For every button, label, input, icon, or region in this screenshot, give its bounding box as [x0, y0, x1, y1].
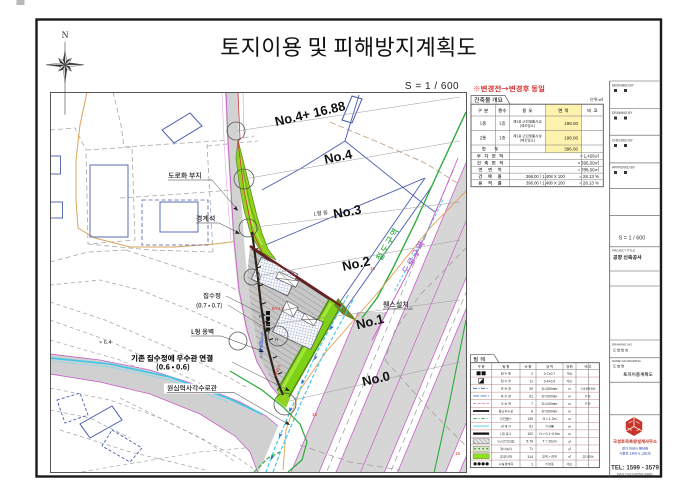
svg-text:-: - [587, 410, 588, 414]
svg-text:P-E: P-E [585, 394, 590, 398]
svg-text:D=100mm: D=100mm [542, 402, 558, 406]
svg-text:-: - [549, 447, 550, 451]
svg-text:T = 20cm: T = 20cm [542, 440, 556, 444]
svg-text:DESIGNED BY: DESIGNED BY [612, 84, 635, 88]
svg-text:0.4×0.5: 0.4×0.5 [544, 379, 556, 383]
svg-text:396.00 / 1,408 X 100: 396.00 / 1,408 X 100 [526, 174, 566, 179]
svg-text:29: 29 [529, 387, 533, 391]
svg-text:198.00: 198.00 [564, 121, 578, 126]
svg-text:102: 102 [527, 432, 533, 436]
svg-text:우수관 D=200mm: 우수관 D=200mm [259, 331, 265, 358]
svg-text:DRAWING NO.: DRAWING NO. [612, 343, 633, 347]
svg-text:8: 8 [531, 410, 533, 414]
svg-text:S = 1 / 600: S = 1 / 600 [405, 81, 459, 92]
svg-text:5.76: 5.76 [526, 440, 533, 444]
svg-text:PROJECT TITLE: PROJECT TITLE [612, 249, 635, 253]
svg-text:APPROVED BY: APPROVED BY [612, 166, 636, 170]
svg-text:0.7×0.7: 0.7×0.7 [544, 372, 556, 376]
svg-text:-: - [587, 425, 588, 429]
svg-text:DRAWING BY: DRAWING BY [612, 111, 633, 115]
svg-text:H: H [275, 337, 278, 342]
svg-text:7: 7 [531, 402, 533, 406]
svg-text:= 28.13 %: = 28.13 % [579, 181, 599, 186]
svg-text:198.00: 198.00 [564, 135, 578, 140]
svg-text:S = 1 / 600: S = 1 / 600 [619, 236, 646, 242]
svg-text:× 6.4: × 6.4 [99, 340, 111, 346]
svg-text:396.00 / 1,408 X 100: 396.00 / 1,408 X 100 [526, 181, 566, 186]
svg-text:D=300mm: D=300mm [542, 387, 558, 391]
svg-text:15: 15 [455, 451, 461, 456]
svg-text:16: 16 [312, 412, 318, 417]
svg-text:H = 1.2m: H = 1.2m [543, 417, 557, 421]
svg-text:N: N [62, 31, 69, 41]
svg-text:D=200mm: D=200mm [542, 394, 558, 398]
svg-text:D=300mm: D=300mm [542, 410, 558, 414]
svg-text:= 28.13 %: = 28.13 % [579, 174, 599, 179]
svg-text:61: 61 [529, 394, 533, 398]
svg-text:-: - [587, 417, 588, 421]
svg-text:FAX:(031)8050-8881: FAX:(031)8050-8881 [617, 471, 653, 476]
svg-text:61: 61 [529, 425, 533, 429]
svg-text:2: 2 [531, 372, 533, 376]
svg-text:H = 0.1~0.5m: H = 0.1~0.5m [539, 432, 560, 436]
svg-text:22.92%: 22.92% [583, 455, 594, 459]
svg-text:P-E: P-E [585, 402, 590, 406]
svg-text:1: 1 [531, 462, 533, 466]
svg-text:396.00: 396.00 [564, 147, 578, 152]
svg-text:-: - [587, 447, 588, 451]
svg-text:71: 71 [529, 447, 533, 451]
svg-text:-: - [587, 432, 588, 436]
svg-text:-: - [587, 372, 588, 376]
svg-text:NAME OF DRAWING: NAME OF DRAWING [612, 359, 642, 363]
svg-text:-: - [587, 462, 588, 466]
svg-text:11: 11 [529, 379, 533, 383]
svg-text:-: - [587, 440, 588, 444]
svg-text:130: 130 [527, 417, 533, 421]
svg-text:CHECKED BY: CHECKED BY [612, 139, 634, 143]
svg-text:BY4.0: BY4.0 [272, 306, 285, 311]
svg-text:-: - [587, 379, 588, 383]
svg-text:314: 314 [527, 455, 533, 459]
